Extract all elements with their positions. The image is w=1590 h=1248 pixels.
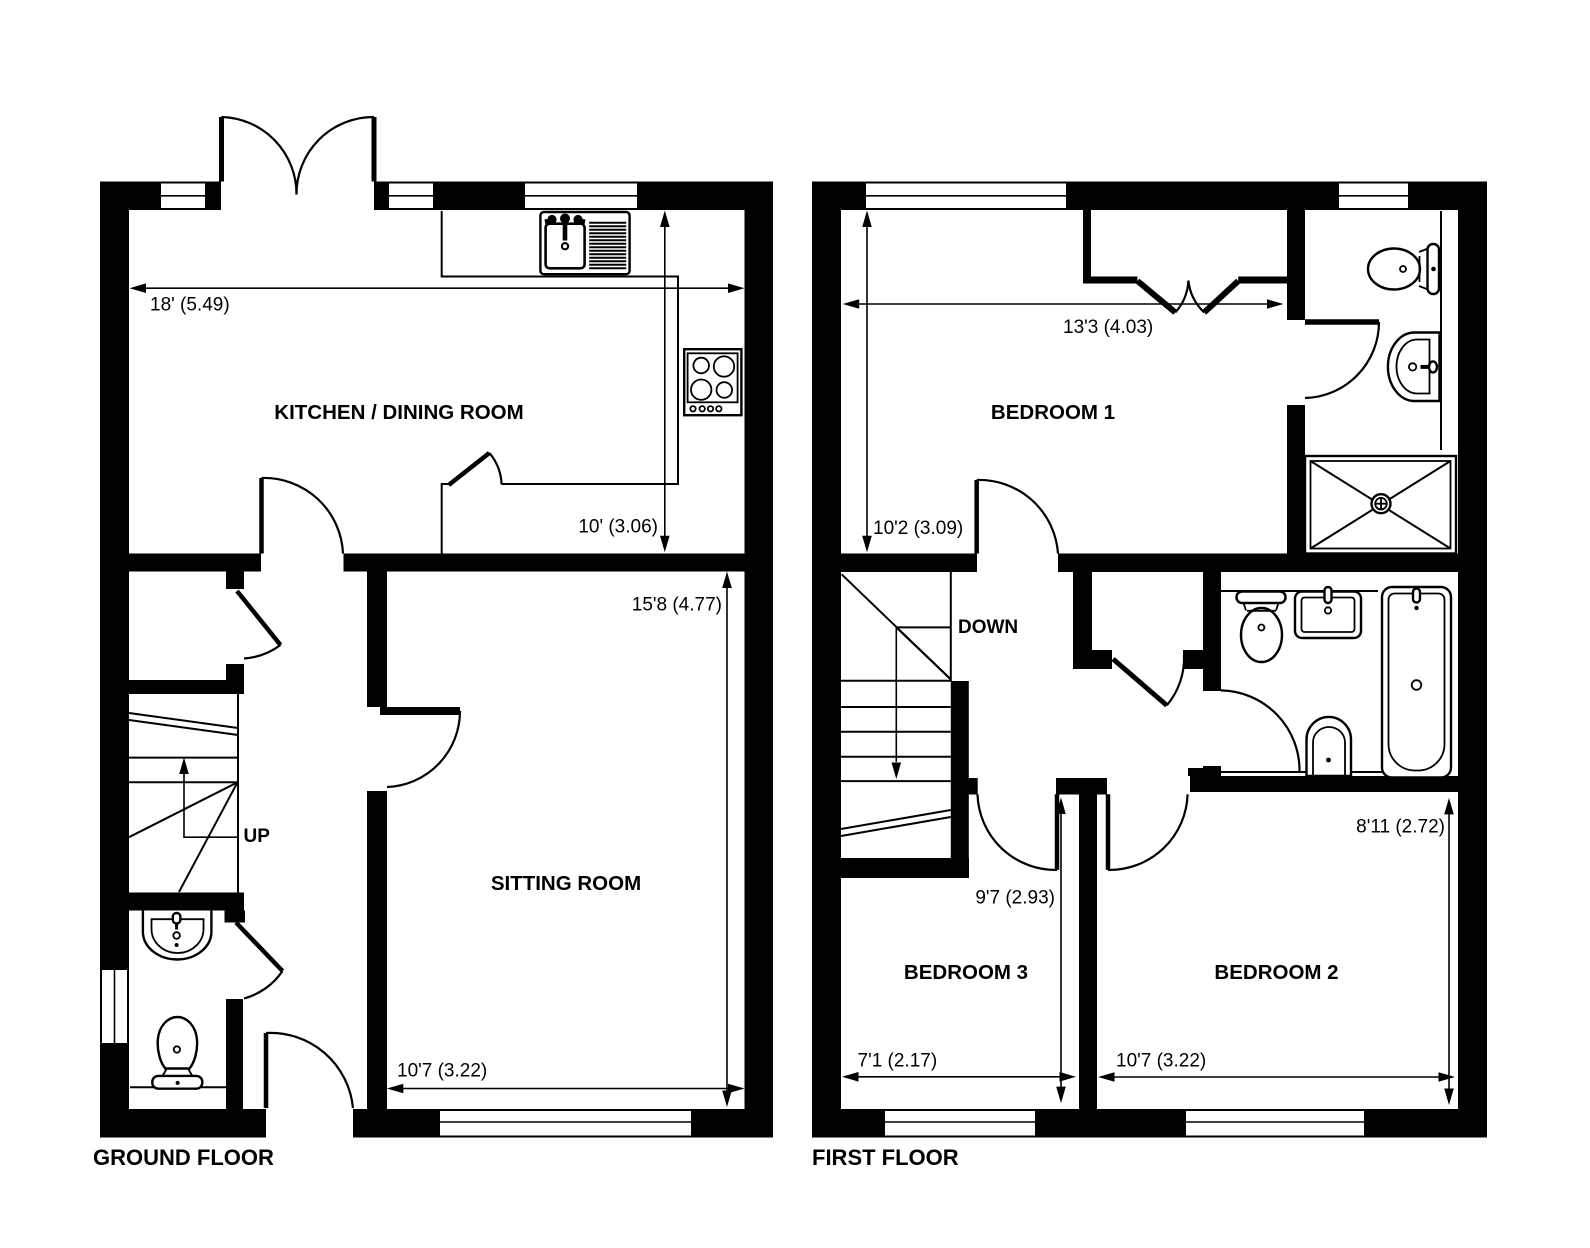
svg-text:15'8 (4.77): 15'8 (4.77) <box>632 595 722 616</box>
svg-text:10'7 (3.22): 10'7 (3.22) <box>397 1061 487 1082</box>
svg-text:KITCHEN / DINING ROOM: KITCHEN / DINING ROOM <box>274 401 523 424</box>
svg-text:SITTING ROOM: SITTING ROOM <box>491 872 641 895</box>
svg-text:18' (5.49): 18' (5.49) <box>150 295 230 316</box>
svg-text:DOWN: DOWN <box>958 617 1018 638</box>
svg-text:BEDROOM 3: BEDROOM 3 <box>904 961 1028 984</box>
svg-text:FIRST FLOOR: FIRST FLOOR <box>812 1145 959 1170</box>
svg-text:9'7 (2.93): 9'7 (2.93) <box>975 888 1055 909</box>
svg-text:13'3 (4.03): 13'3 (4.03) <box>1063 317 1153 338</box>
svg-text:UP: UP <box>244 826 271 847</box>
svg-text:10'7 (3.22): 10'7 (3.22) <box>1116 1051 1206 1072</box>
svg-text:10'2 (3.09): 10'2 (3.09) <box>873 518 963 539</box>
svg-text:BEDROOM 1: BEDROOM 1 <box>991 401 1115 424</box>
svg-text:8'11 (2.72): 8'11 (2.72) <box>1356 817 1445 838</box>
svg-text:GROUND FLOOR: GROUND FLOOR <box>93 1145 274 1170</box>
svg-text:BEDROOM 2: BEDROOM 2 <box>1214 961 1338 984</box>
svg-text:7'1 (2.17): 7'1 (2.17) <box>858 1051 938 1072</box>
svg-text:10' (3.06): 10' (3.06) <box>578 517 658 538</box>
